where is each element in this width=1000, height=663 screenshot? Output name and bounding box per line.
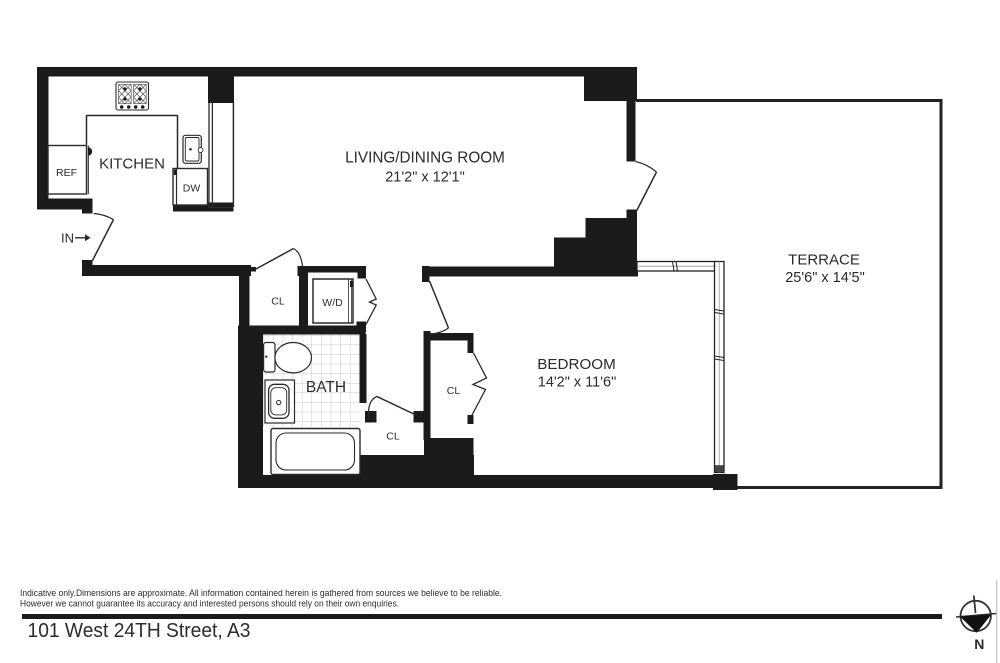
svg-text:CL: CL [271,296,285,308]
svg-text:25'6" x 14'5": 25'6" x 14'5" [785,270,865,286]
svg-text:DW: DW [183,183,201,195]
svg-text:Indicative only.Dimensions are: Indicative only.Dimensions are approxima… [20,588,502,598]
svg-text:21'2" x 12'1": 21'2" x 12'1" [385,170,465,186]
svg-text:LIVING/DINING ROOM: LIVING/DINING ROOM [345,150,505,167]
svg-text:IN: IN [61,231,74,246]
svg-text:TERRACE: TERRACE [788,252,860,269]
svg-text:W/D: W/D [322,297,343,309]
svg-text:BEDROOM: BEDROOM [537,356,615,373]
svg-text:14'2" x 11'6": 14'2" x 11'6" [538,375,616,391]
svg-text:BATH: BATH [306,379,346,396]
svg-text:CL: CL [386,431,400,443]
svg-text:REF: REF [56,167,77,179]
svg-text:N: N [974,636,984,652]
svg-text:101 West 24TH Street, A3: 101 West 24TH Street, A3 [28,619,251,642]
svg-text:KITCHEN: KITCHEN [99,156,165,173]
svg-text:However we cannot guarantee it: However we cannot guarantee its accuracy… [20,599,399,609]
svg-text:CL: CL [447,385,461,397]
